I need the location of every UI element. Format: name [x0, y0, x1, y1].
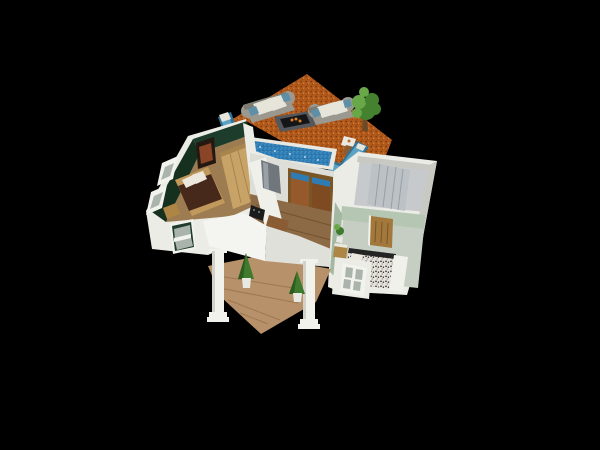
- front-left-window[interactable]: [170, 219, 196, 254]
- sage-nightstand[interactable]: [333, 243, 348, 259]
- sage-bedroom: [330, 202, 425, 299]
- wooden-door[interactable]: [368, 215, 393, 248]
- floorplan-canvas[interactable]: [0, 0, 600, 450]
- closet-panels[interactable]: [367, 163, 410, 211]
- 3d-viewport[interactable]: [0, 0, 600, 450]
- sage-front-window[interactable]: [340, 263, 367, 296]
